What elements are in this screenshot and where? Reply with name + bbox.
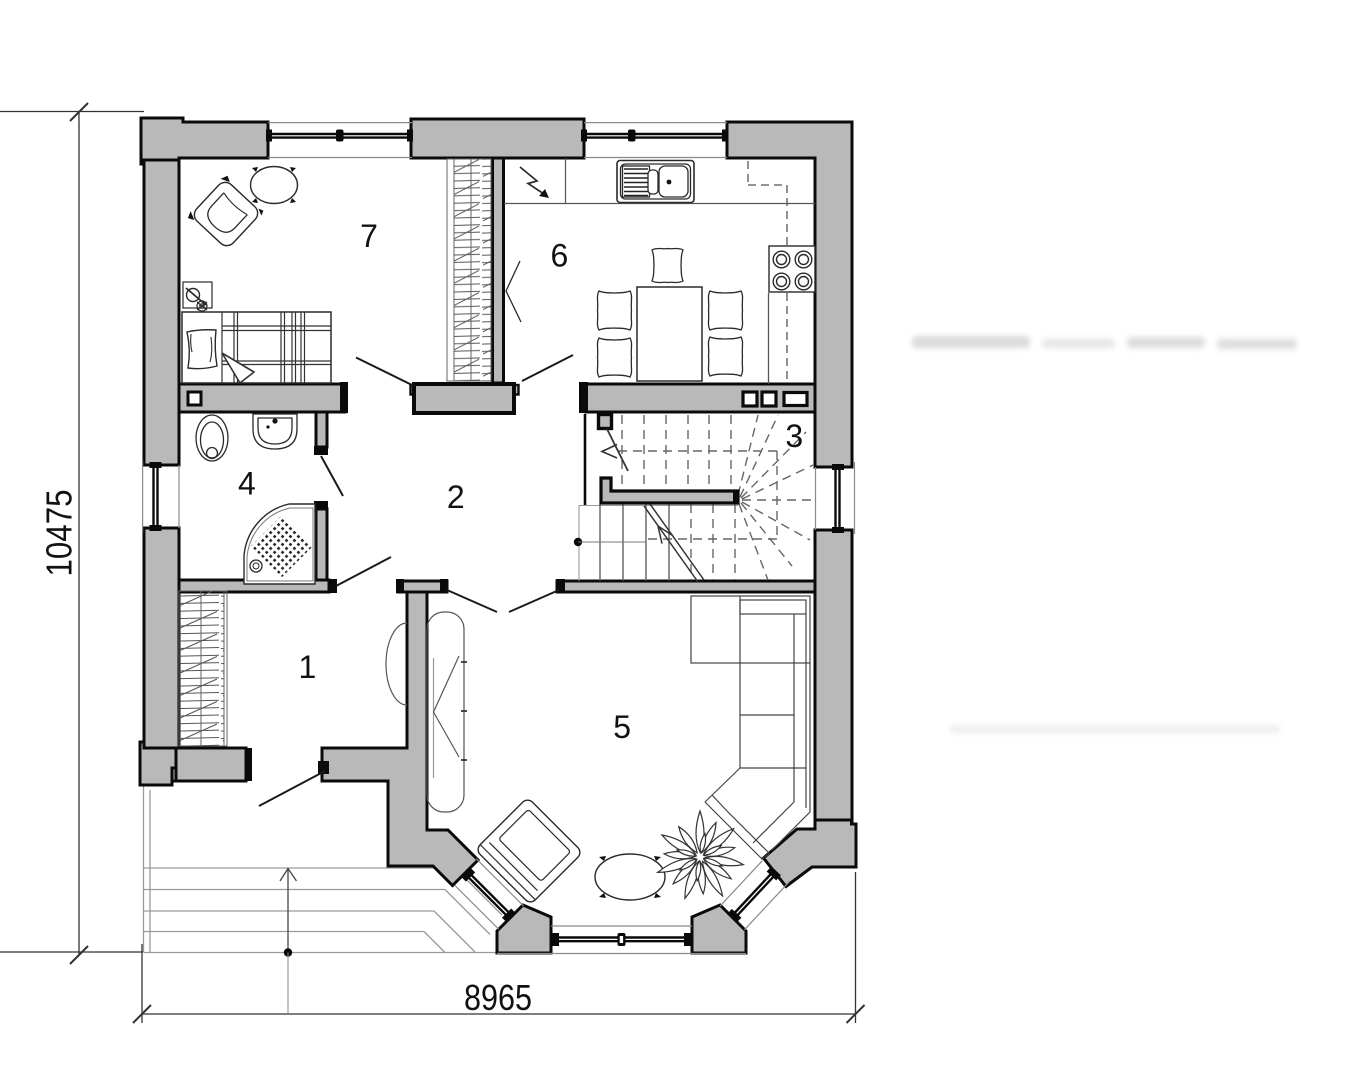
svg-text:10475: 10475 xyxy=(39,490,80,577)
svg-text:7: 7 xyxy=(360,218,378,254)
svg-text:5: 5 xyxy=(613,709,631,745)
svg-text:6: 6 xyxy=(551,238,569,274)
svg-text:1: 1 xyxy=(299,649,317,685)
svg-text:2: 2 xyxy=(447,479,465,515)
svg-text:4: 4 xyxy=(238,466,256,502)
svg-text:8965: 8965 xyxy=(464,977,532,1018)
svg-text:3: 3 xyxy=(785,418,803,454)
